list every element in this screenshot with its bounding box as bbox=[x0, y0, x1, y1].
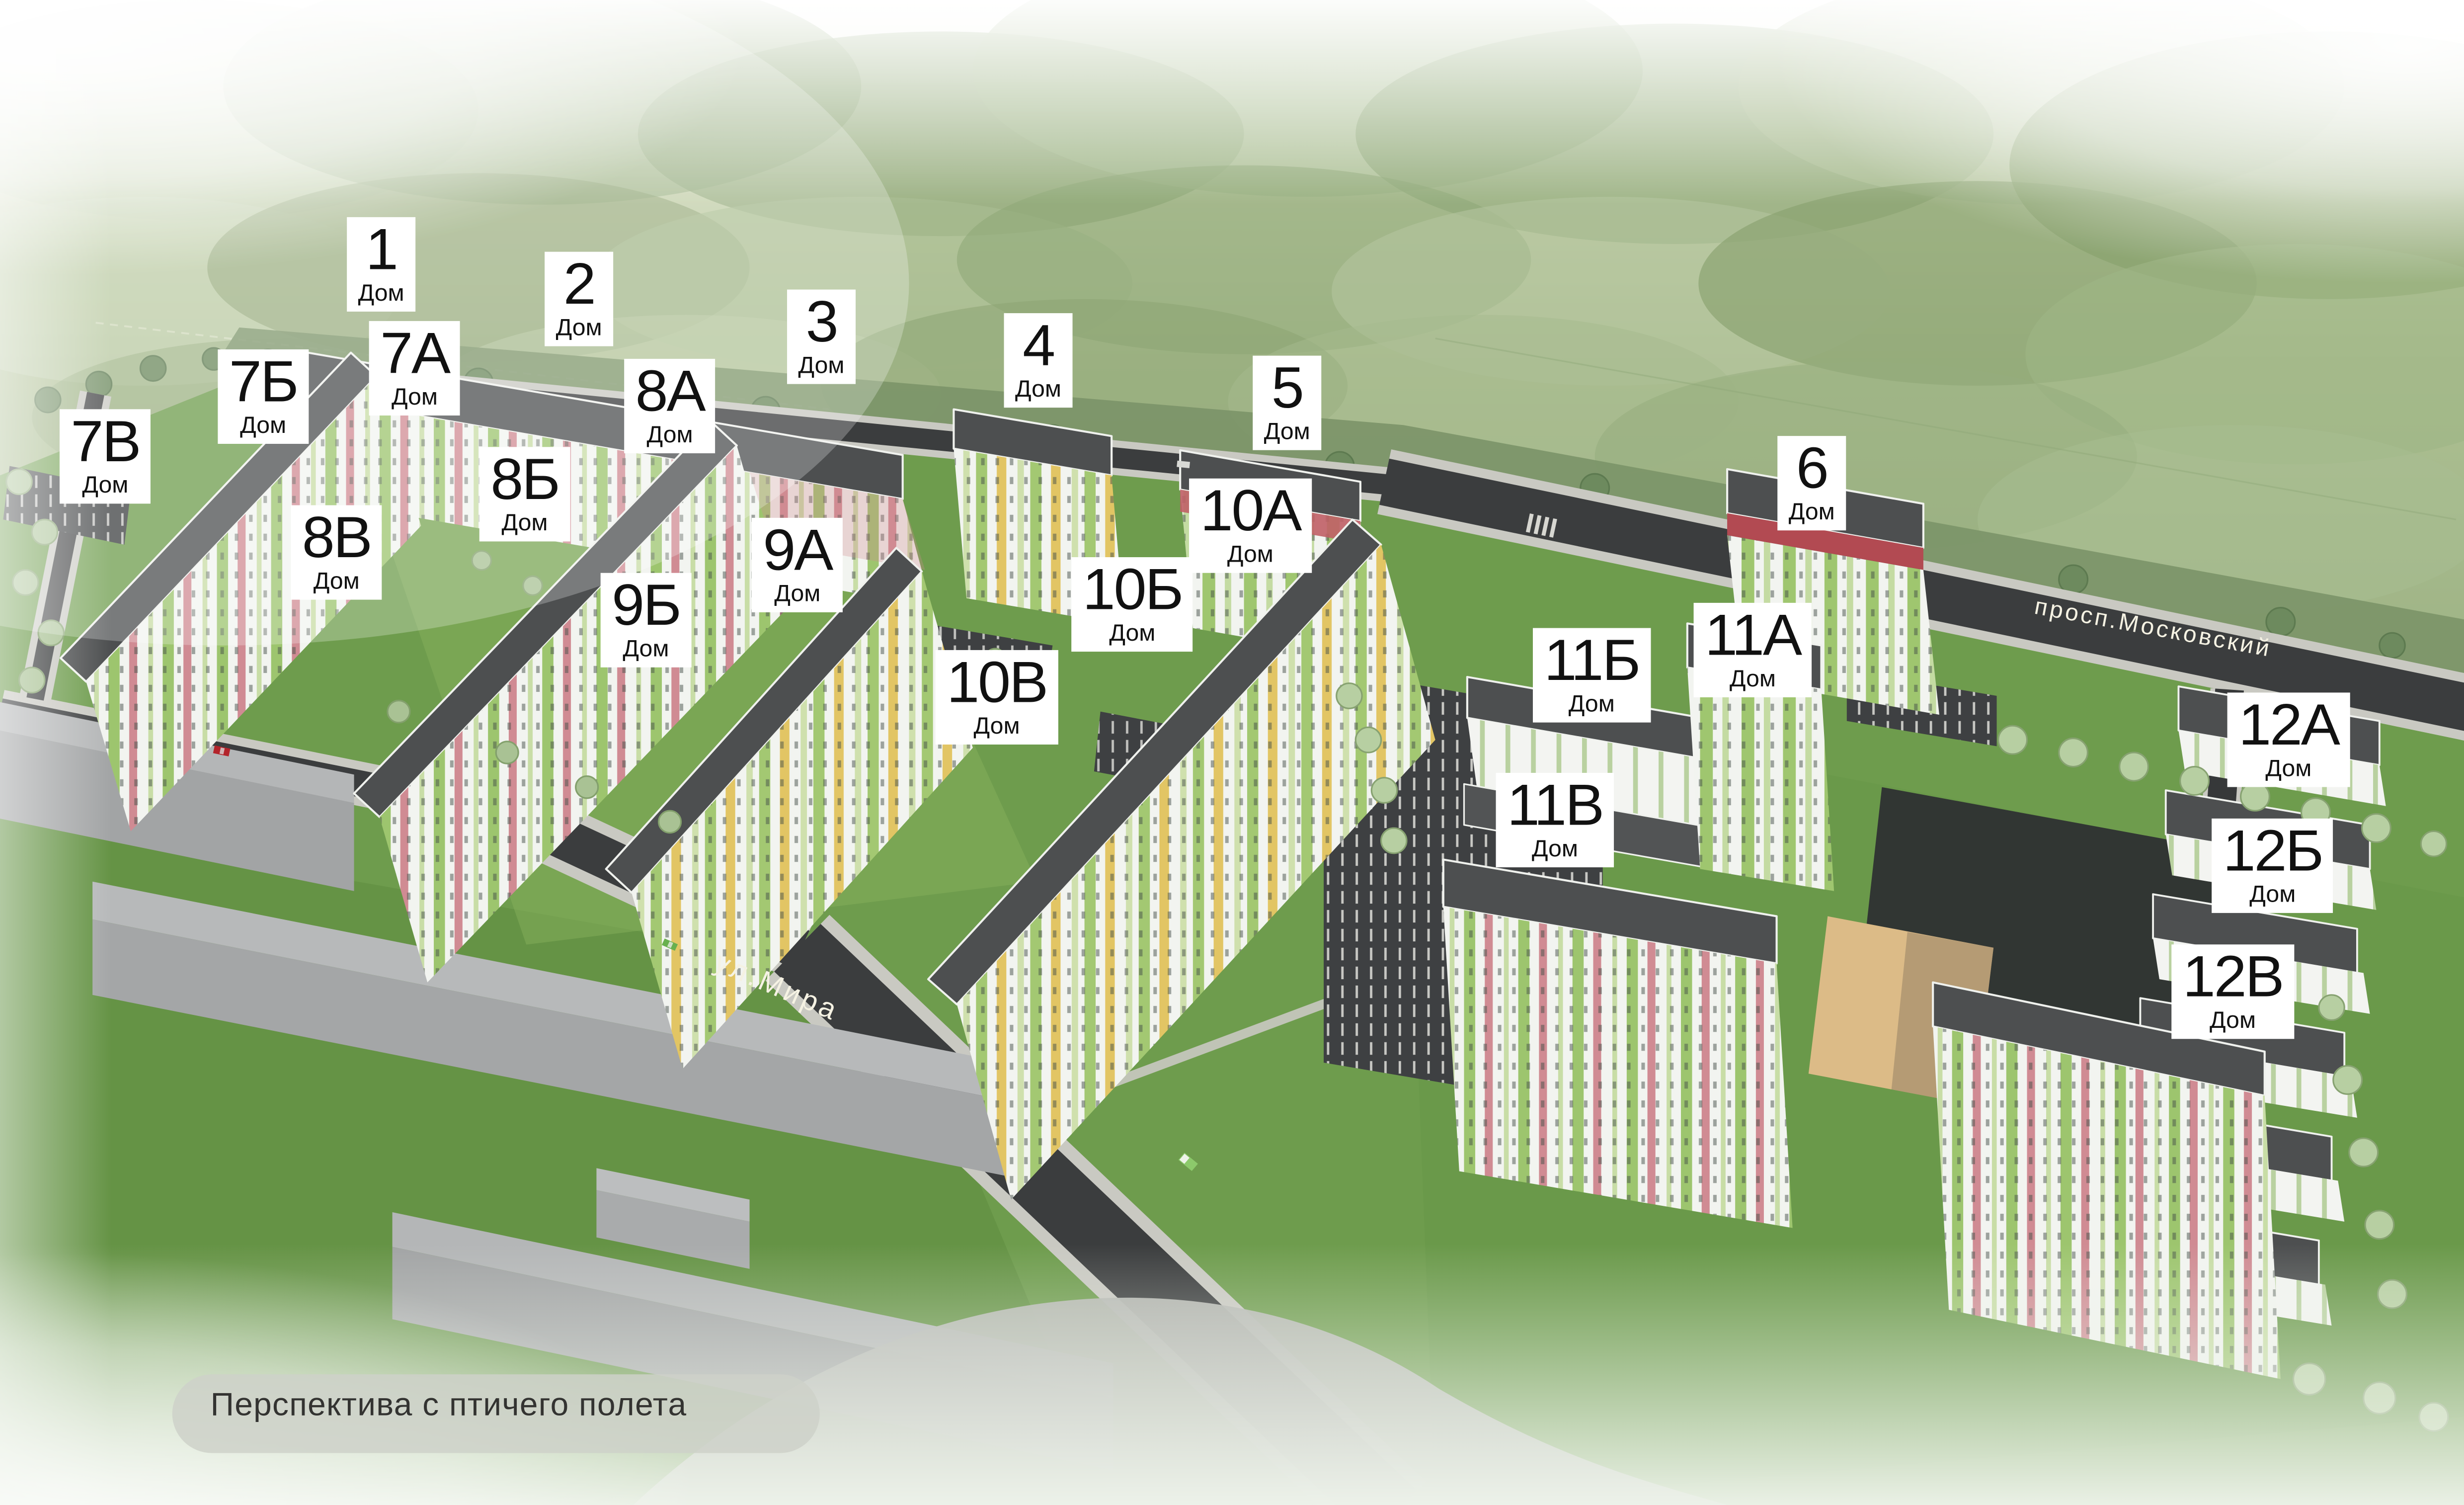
building-number: 9А bbox=[763, 522, 832, 578]
building-number: 12В bbox=[2183, 949, 2283, 1004]
building-label-7А: 7АДом bbox=[369, 321, 461, 416]
building-sublabel: Дом bbox=[798, 354, 844, 378]
building-label-1: 1Дом bbox=[347, 217, 415, 312]
building-label-9А: 9АДом bbox=[752, 518, 843, 612]
building-number: 8А bbox=[636, 363, 705, 418]
building-sublabel: Дом bbox=[636, 423, 705, 447]
building-label-12Б: 12БДом bbox=[2212, 819, 2333, 913]
building-sublabel: Дом bbox=[2223, 883, 2322, 907]
building-sublabel: Дом bbox=[302, 570, 371, 594]
building-number: 7А bbox=[380, 326, 449, 381]
building-number: 11В bbox=[1507, 777, 1603, 833]
building-number: 2 bbox=[556, 256, 602, 312]
white-car bbox=[1177, 461, 1190, 468]
building-number: 12А bbox=[2238, 697, 2339, 752]
building-label-4: 4Дом bbox=[1004, 313, 1073, 408]
building-label-10Б: 10БДом bbox=[1071, 557, 1193, 652]
building-number: 4 bbox=[1015, 318, 1061, 373]
building-sublabel: Дом bbox=[358, 282, 404, 306]
building-label-11В: 11ВДом bbox=[1496, 773, 1614, 867]
building-label-12А: 12АДом bbox=[2227, 692, 2350, 787]
building-number: 8Б bbox=[490, 452, 559, 507]
building-number: 10А bbox=[1200, 483, 1301, 538]
building-number: 11Б bbox=[1544, 633, 1639, 688]
building-label-10А: 10АДом bbox=[1189, 479, 1312, 573]
building-sublabel: Дом bbox=[1507, 837, 1603, 861]
building-sublabel: Дом bbox=[2238, 757, 2339, 781]
building-label-2: 2Дом bbox=[545, 252, 613, 346]
building-number: 3 bbox=[798, 294, 844, 349]
building-sublabel: Дом bbox=[380, 386, 449, 410]
building-sublabel: Дом bbox=[490, 512, 559, 536]
building-label-12В: 12ВДом bbox=[2171, 944, 2294, 1039]
building-sublabel: Дом bbox=[556, 317, 602, 340]
building-label-11А: 11АДом bbox=[1694, 603, 1812, 697]
caption-badge: Перспектива с птичего полета bbox=[172, 1374, 820, 1453]
building-number: 12Б bbox=[2223, 823, 2322, 878]
building-number: 10Б bbox=[1083, 562, 1182, 617]
building-label-8В: 8ВДом bbox=[291, 505, 382, 600]
masterplan-stage: 1Дом2Дом3Дом4Дом5Дом6Дом7АДом7БДом7ВДом8… bbox=[0, 0, 2464, 1505]
building-label-7В: 7ВДом bbox=[60, 409, 151, 503]
building-number: 8В bbox=[302, 510, 371, 565]
building-number: 10В bbox=[947, 655, 1047, 710]
building-label-5: 5Дом bbox=[1253, 356, 1321, 450]
building-label-3: 3Дом bbox=[787, 290, 856, 384]
building-label-8А: 8АДом bbox=[624, 359, 715, 453]
building-sublabel: Дом bbox=[1544, 693, 1639, 717]
building-number: 5 bbox=[1264, 360, 1310, 416]
caption-text: Перспектива с птичего полета bbox=[211, 1387, 687, 1424]
building-sublabel: Дом bbox=[1083, 622, 1182, 646]
building-label-7Б: 7БДом bbox=[218, 349, 309, 444]
building-number: 6 bbox=[1789, 441, 1835, 496]
building-sublabel: Дом bbox=[1789, 501, 1835, 524]
building-label-8Б: 8БДом bbox=[479, 447, 570, 541]
building-number: 11А bbox=[1705, 607, 1801, 663]
building-sublabel: Дом bbox=[71, 474, 140, 498]
building-sublabel: Дом bbox=[947, 715, 1047, 739]
building-sublabel: Дом bbox=[1705, 668, 1801, 691]
building-sublabel: Дом bbox=[1015, 378, 1061, 402]
building-label-10В: 10ВДом bbox=[936, 650, 1058, 745]
building-number: 7Б bbox=[229, 354, 298, 409]
building-sublabel: Дом bbox=[763, 583, 832, 606]
building-label-11Б: 11БДом bbox=[1533, 628, 1651, 723]
building-number: 1 bbox=[358, 222, 404, 277]
building-sublabel: Дом bbox=[2183, 1009, 2283, 1033]
building-number: 7В bbox=[71, 414, 140, 469]
building-number: 9Б bbox=[612, 578, 680, 633]
building-sublabel: Дом bbox=[229, 414, 298, 438]
building-label-9Б: 9БДом bbox=[601, 573, 692, 668]
building-sublabel: Дом bbox=[1264, 420, 1310, 444]
building-sublabel: Дом bbox=[612, 638, 680, 662]
building-sublabel: Дом bbox=[1200, 543, 1301, 567]
building-label-6: 6Дом bbox=[1777, 436, 1846, 530]
